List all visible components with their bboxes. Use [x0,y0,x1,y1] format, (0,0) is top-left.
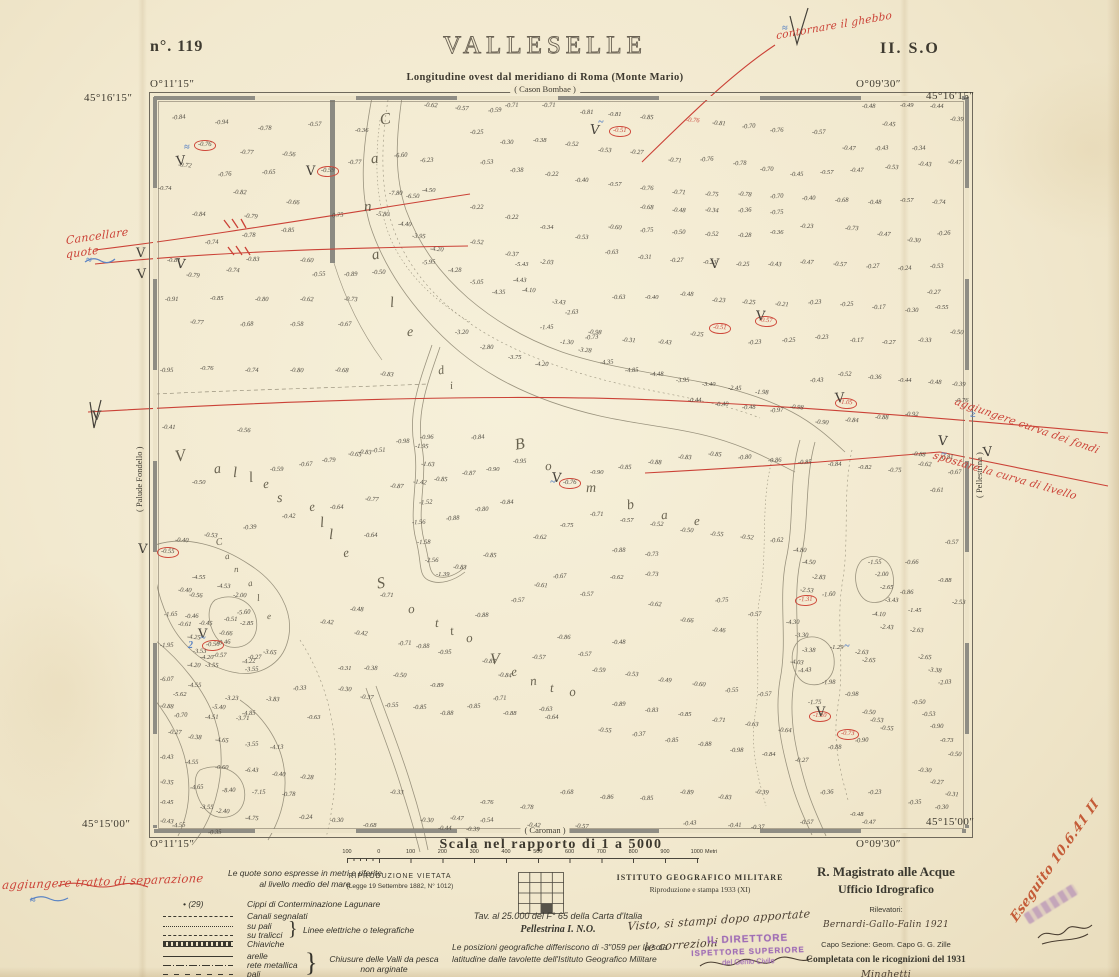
scalebar-tick-label: 300 [470,849,479,855]
handwritten-annotation-3: spostare la curva di livello [931,450,1079,503]
legend-group-linee: Linee elettriche o telegrafiche [303,925,414,935]
scalebar-tick-label: 0 [377,849,380,855]
handwritten-annotation-4: aggiungere tratto di separazione [1,871,204,892]
scalebar-tick-label: 700 [597,849,606,855]
arelle-symbol [163,956,233,957]
legend-group-chiusure: Chiusure delle Valli da pesca non argina… [319,954,449,974]
legend-group-chiusure-1: Chiusure delle Valli da pesca [319,954,449,964]
handwritten-line: contornare il ghebbo [776,10,892,44]
tavoletta-name: Pellestrina I. N.O. [428,924,688,935]
completata-line: Completata con le ricognizioni del 1931 [766,955,1006,965]
handwritten-line: aggiungere curva dei fondi [952,396,1102,457]
su-tralicci-symbol [163,935,233,936]
agency-block: R. Magistrato alle Acque Ufficio Idrogra… [766,864,1006,977]
posizioni-line-1: Le posizioni geografiche differiscono di… [452,942,667,952]
handwritten-line: aggiungere tratto di separazione [1,871,204,892]
agency-line-1: R. Magistrato alle Acque [766,864,1006,880]
annotations-layer: contornare il ghebboCancellarequoteaggiu… [0,0,1119,977]
sheet-index-grid-icon [518,872,564,914]
legend-group-chiusure-2: non arginate [319,964,449,974]
map-sheet: n°. 119 VALLESELLE II. S.O Longitudine o… [0,0,1119,977]
agency-line-2: Ufficio Idrografico [766,882,1006,897]
capo-sezione: Capo Sezione: Geom. Capo G. G. Zille [766,940,1006,949]
canali-symbol [163,916,233,917]
scalebar-tick-label: 100 [406,849,415,855]
scalebar-tick-label: 100 [342,849,351,855]
chiaviche-symbol [163,941,233,947]
handwritten-annotation-0: contornare il ghebbo [776,10,892,44]
handwritten-line: spostare la curva di livello [931,450,1079,503]
scalebar-labels: 10001002003004005006007008009001000Metri [347,849,747,857]
rilevatori-names: Bernardi-Gallo-Falin 1921 [766,920,1006,931]
legend-item-cippi: Cippi di Conterminazione Lagunare [247,899,380,909]
scalebar-subdivision [347,858,379,861]
scalebar-unit: Metri [705,849,717,855]
scalebar-tick-label: 900 [660,849,669,855]
posizioni-line-2: latitudine dalle tavolette dell'Istituto… [452,954,667,964]
rilevatori-label: Rilevatori: [766,905,1006,914]
handwritten-annotation-2: aggiungere curva dei fondi [952,396,1102,457]
handwritten-annotation-1: Cancellarequote [66,225,128,262]
riproduzione-block: RIPRODUZIONE VIETATA (Legge 19 Settembre… [330,873,470,890]
scalebar-tick-label: 500 [533,849,542,855]
rete-metallica-symbol [163,965,233,966]
su-pali-symbol [163,926,233,927]
riproduzione-law: (Legge 19 Settembre 1882, N° 1012) [330,883,470,890]
scalebar-tick-label: 400 [501,849,510,855]
legend-item-pali: pali [247,969,260,977]
tavoletta-line: Tav. al 25.000 del F° 65 della Carta d'I… [428,911,688,921]
posizioni-block: Le posizioni geografiche differiscono di… [452,942,667,964]
minghetti-signature: Minghetti [766,969,1006,977]
scalebar [347,858,699,863]
legend-brace-2: } [305,948,317,977]
scalebar-tick-label: 800 [629,849,638,855]
legend-brace-1: } [288,918,298,941]
cippo-symbol: • (29) [183,899,203,909]
pali-symbol [163,974,233,975]
legend-item-chiaviche: Chiaviche [247,939,284,949]
riproduzione-title: RIPRODUZIONE VIETATA [330,873,470,880]
scalebar-tick-label: 600 [565,849,574,855]
legend-item-canali: Canali segnalati [247,911,307,921]
scalebar-tick-label: 1000 [691,849,703,855]
scalebar-tick-label: 200 [438,849,447,855]
tavoletta-block: Tav. al 25.000 del F° 65 della Carta d'I… [428,911,688,935]
